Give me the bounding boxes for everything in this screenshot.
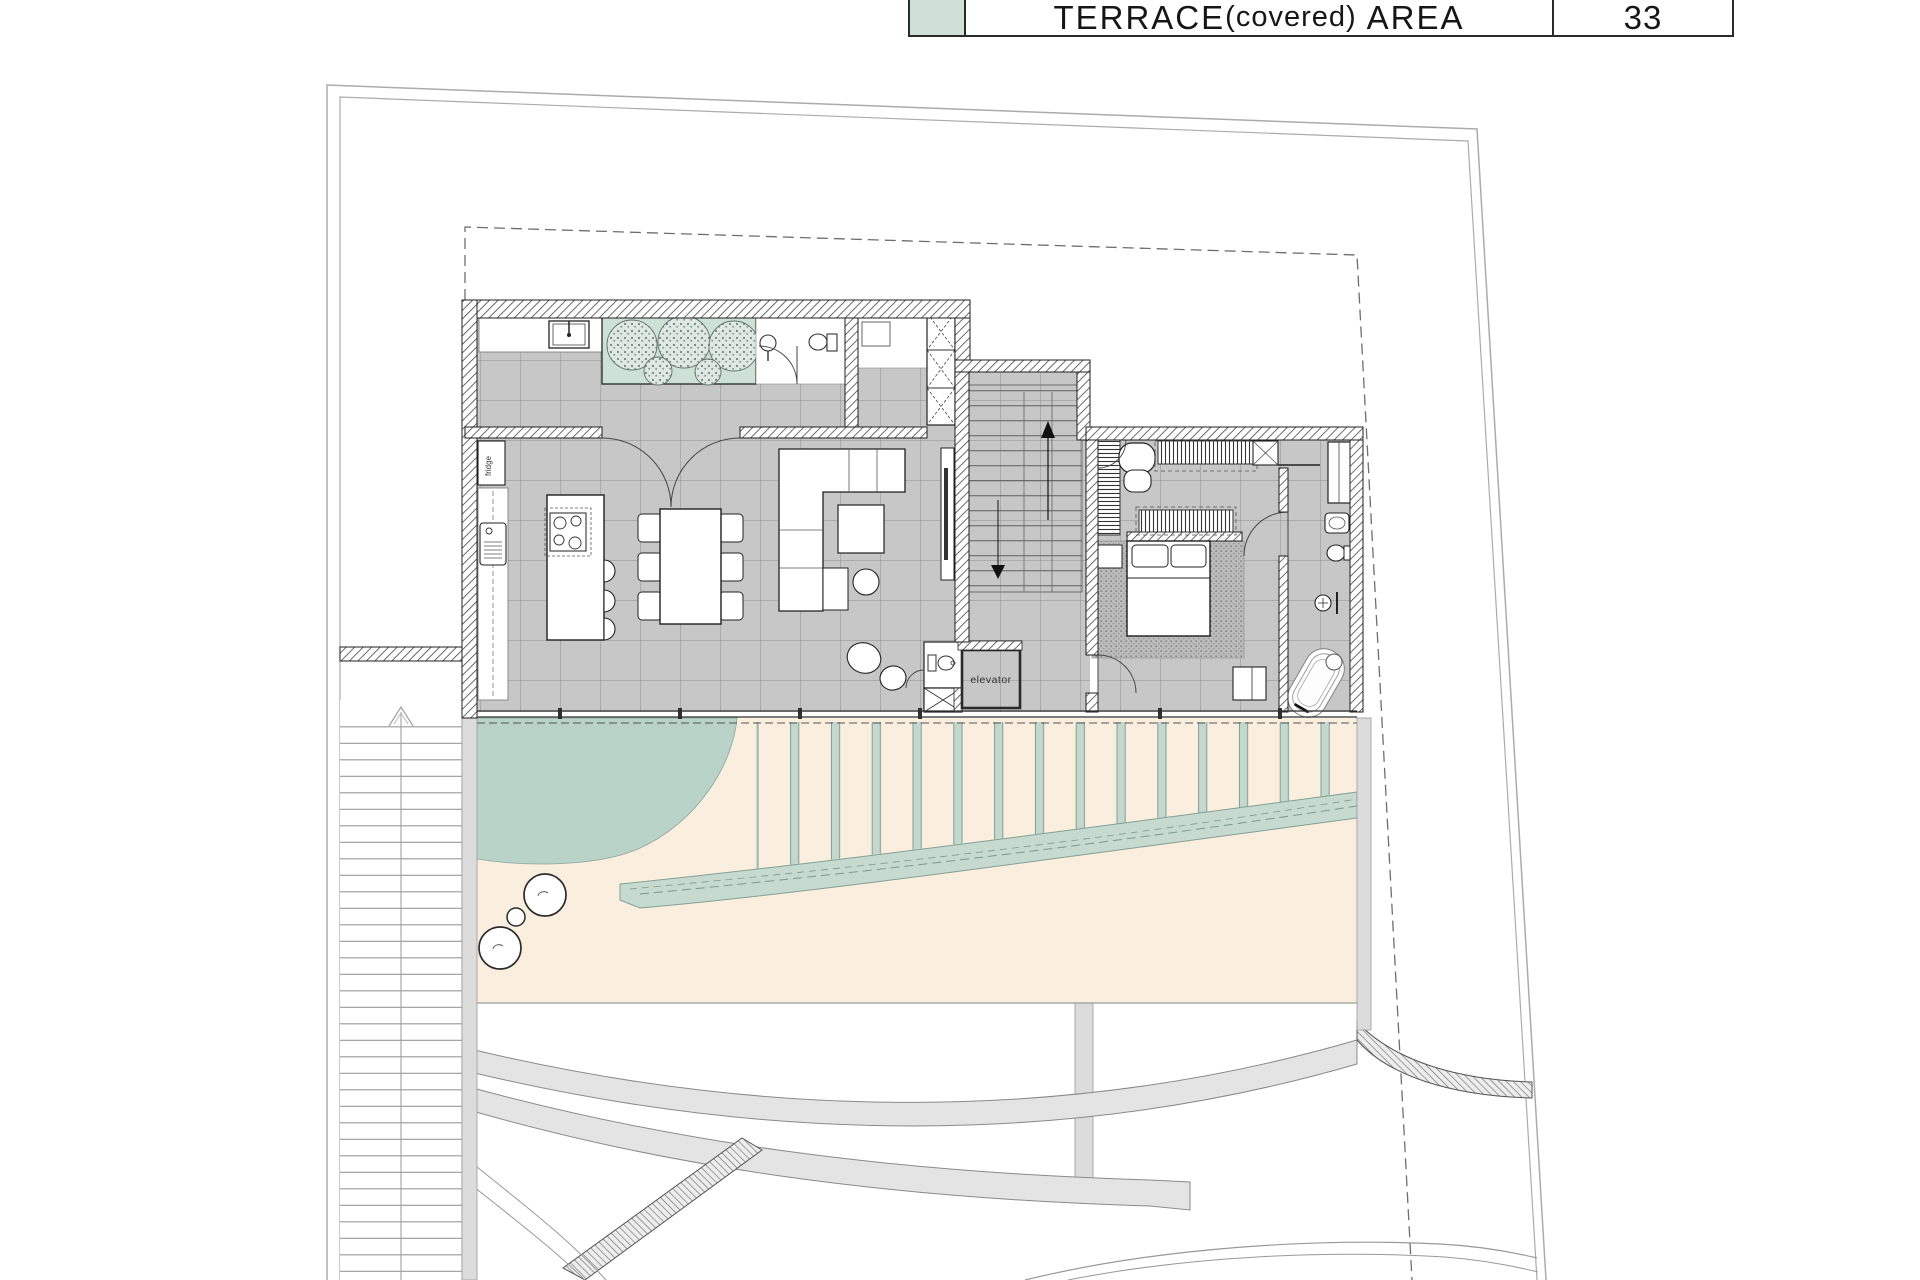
terrace-left-wall [462,718,477,1280]
legend-table: TERRACE(covered)AREA 33 [908,0,1734,37]
bath-cabinet [1328,442,1351,503]
legend-label-paren: (covered) [1225,1,1357,34]
shaft-box [924,688,962,712]
wardrobe-mid [1139,510,1233,532]
terrace [462,718,1371,1280]
bath-stool [1326,654,1342,670]
bench [1233,667,1266,700]
elevator: elevator [958,641,1022,708]
kitchen-island [545,495,615,640]
vestibule-toilet [809,334,837,351]
wardrobe-left [1098,440,1120,535]
toilet [1327,545,1350,561]
floor-plan-sheet: TERRACE(covered)AREA 33 [0,0,1920,1280]
counter-sink-unit [480,523,506,565]
tall-cabinet-column [927,313,955,425]
lower-garden-paths [440,1003,1538,1280]
shower [1253,441,1278,465]
wc-toilet [938,656,954,670]
tv [944,468,948,560]
sofa-chaise [823,568,848,610]
nightstand [1098,545,1122,568]
main-staircase [969,385,1082,592]
dining-table [660,509,721,624]
garden-wall-stub [340,647,462,661]
exterior-stairs [340,647,462,1280]
hatched-ramp-right [1357,1022,1532,1098]
elevator-label: elevator [970,674,1011,686]
wardrobe-top [1158,441,1254,464]
pillow [1132,545,1168,567]
legend-color-swatch [908,0,966,37]
site-plan-drawing: fridge [0,0,1920,1280]
hatched-ramp-diagonal [563,1138,762,1280]
legend-label-main: TERRACE [1053,0,1225,37]
terrace-right-wall [1357,718,1371,1030]
fridge-label: fridge [484,455,493,476]
legend-area-value: 33 [1554,0,1734,37]
legend-label-tail: AREA [1367,0,1465,37]
washbasin [1325,513,1349,533]
bar-stools [604,560,615,640]
pillow [1171,545,1206,567]
dining-set [638,509,743,624]
bed [1127,541,1210,636]
bed-head-wall [1127,532,1242,541]
legend-label: TERRACE(covered)AREA [966,0,1554,37]
pouf [853,569,879,595]
retaining-band-upper [462,1040,1357,1126]
coffee-table [838,505,884,553]
building: fridge [462,300,1363,724]
